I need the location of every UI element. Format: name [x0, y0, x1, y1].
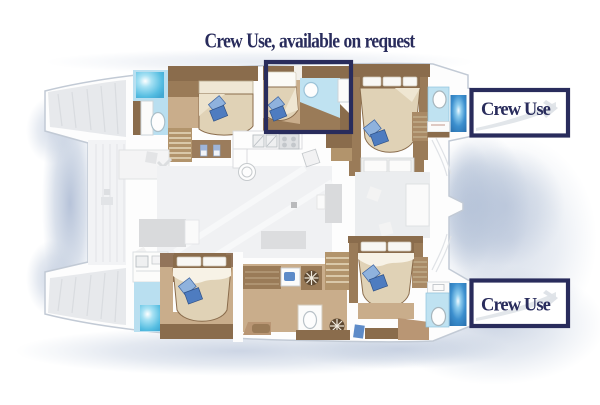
svg-text:Crew Use: Crew Use [481, 296, 551, 316]
svg-text:Crew Use: Crew Use [481, 100, 551, 120]
svg-text:Crew Use, available on request: Crew Use, available on request [205, 30, 416, 53]
